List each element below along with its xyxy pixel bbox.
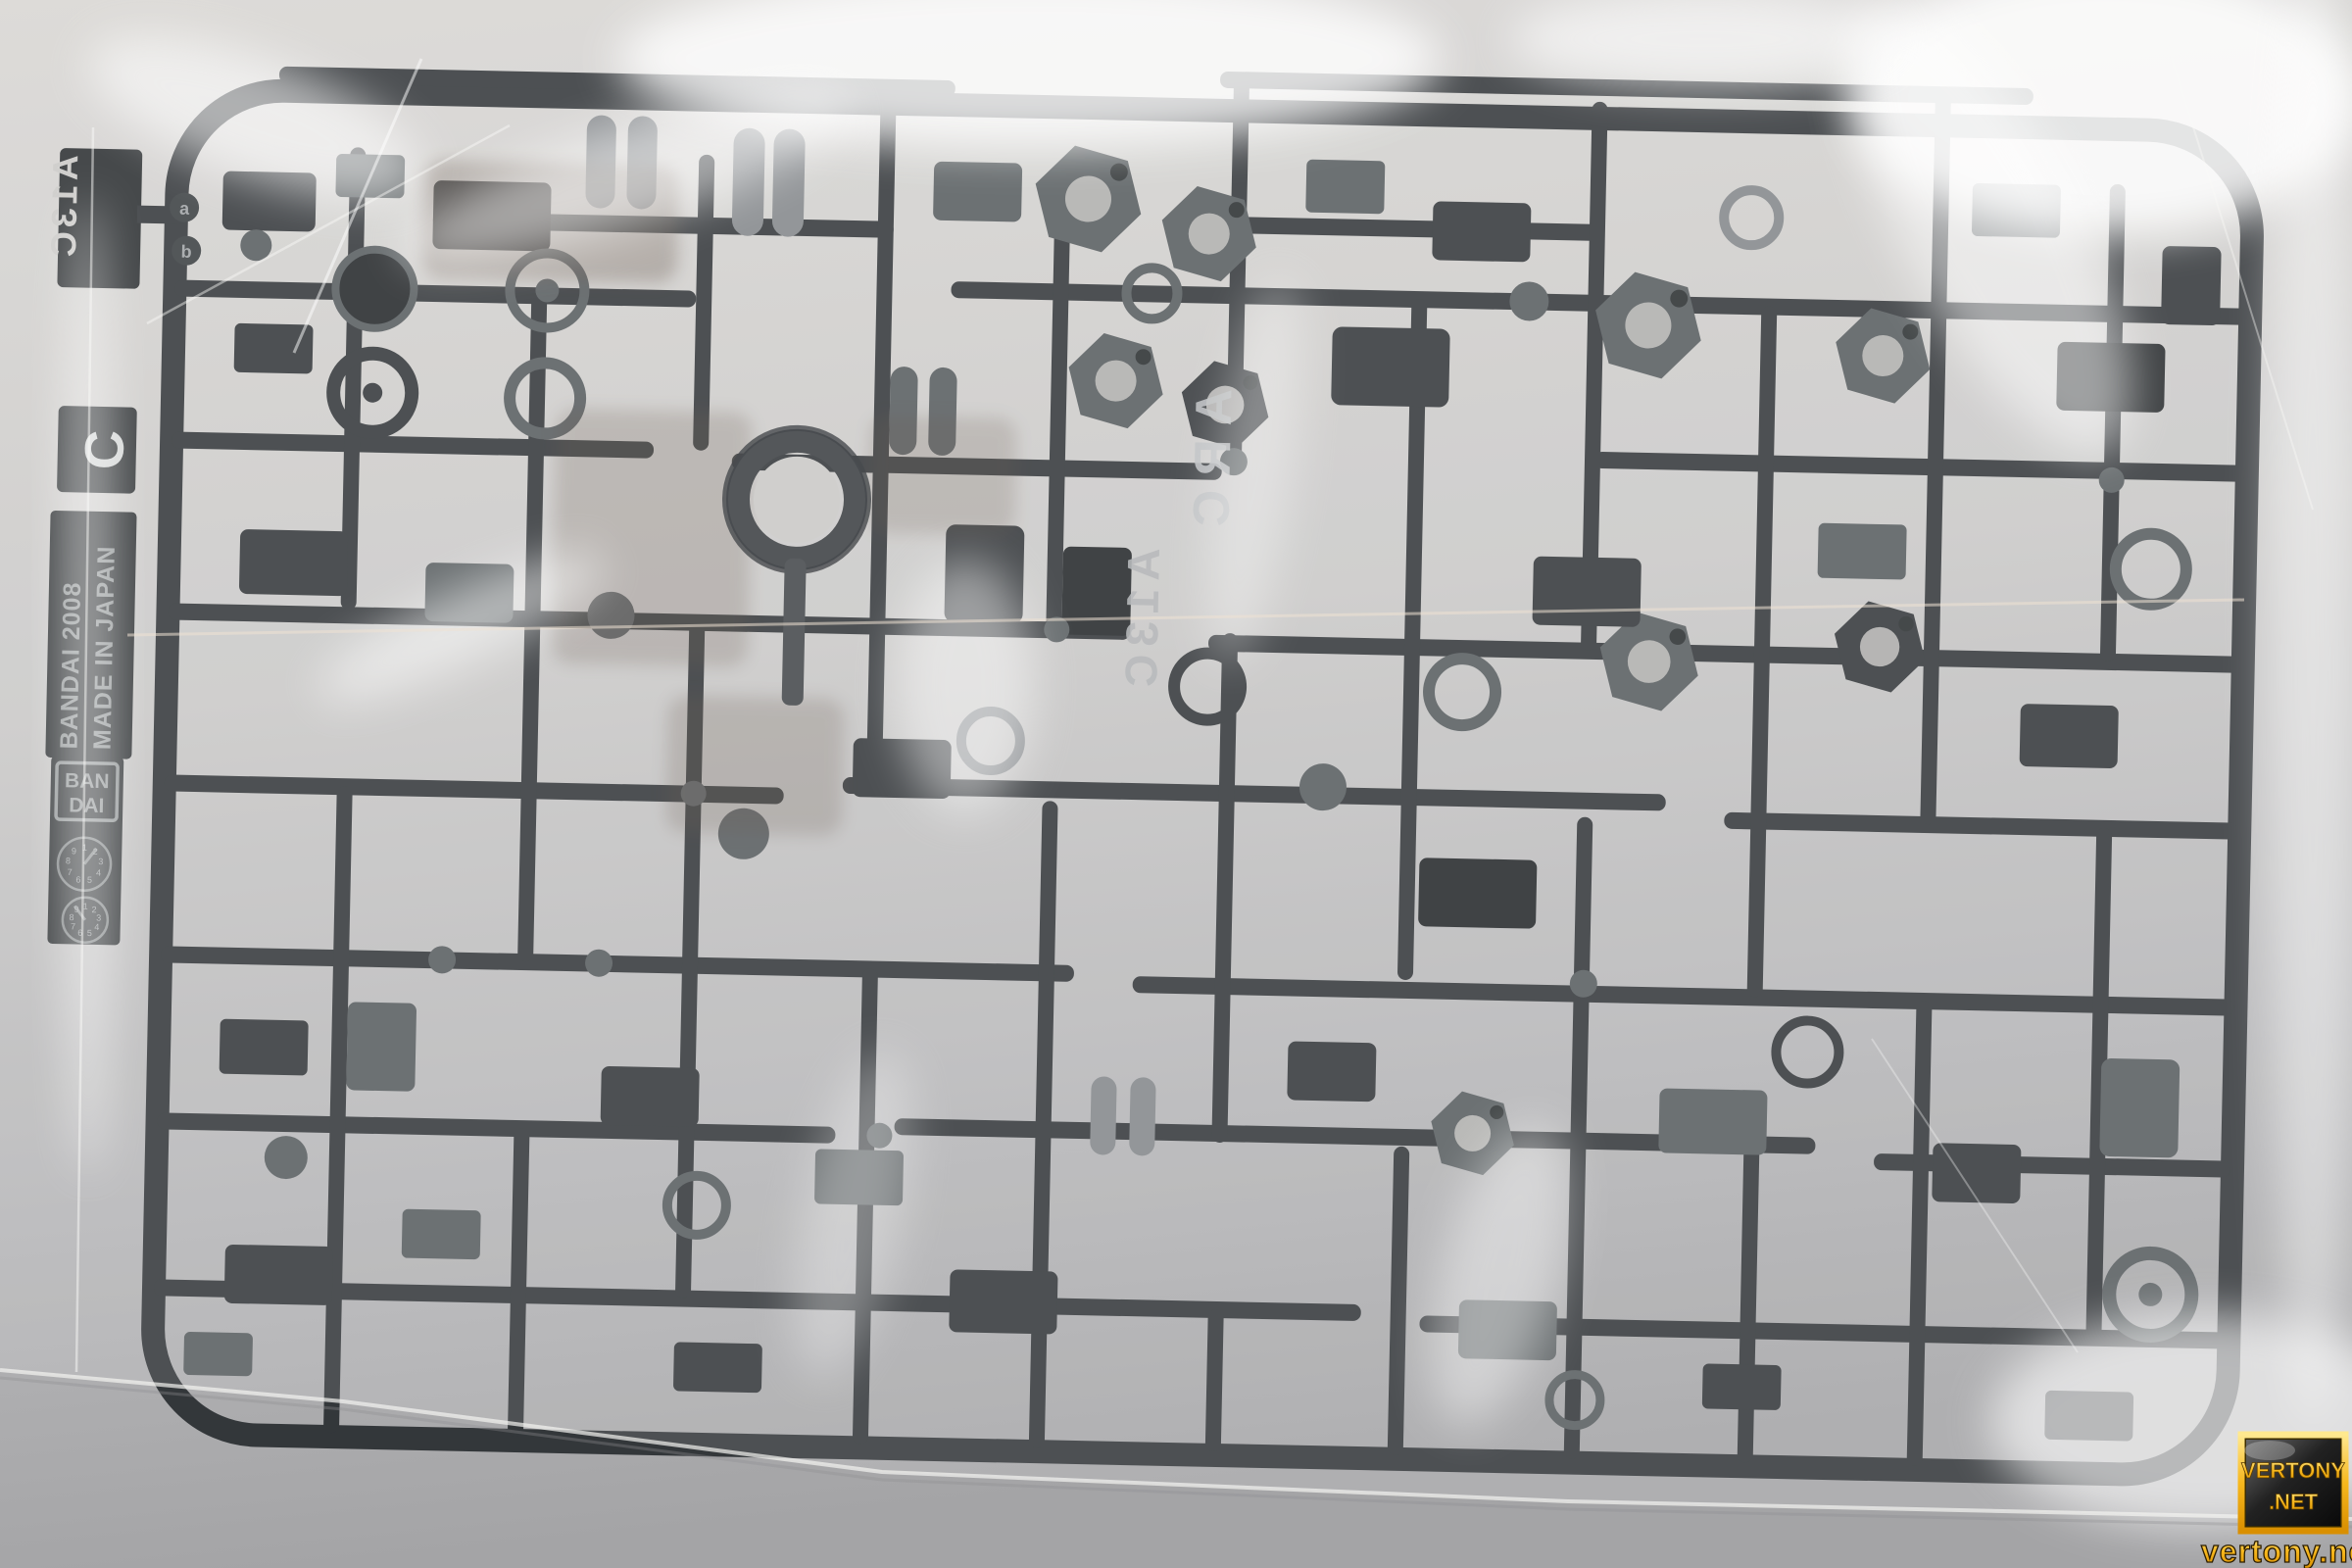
bag-highlight-streak [63,196,114,1176]
sprue-photo: A13C a b C BANDAI 2008 MADE IN JAPAN BAN… [0,0,2352,1568]
watermark-url: vertony.net [2201,1534,2352,1568]
plastic-bag [0,0,2352,1529]
watermark-badge-line2: .NET [2269,1490,2319,1514]
bag-highlight-streak [897,559,1034,813]
watermark-badge-line1: VERTONY [2241,1458,2345,1483]
photo-stage: A13C a b C BANDAI 2008 MADE IN JAPAN BAN… [0,0,2352,1568]
